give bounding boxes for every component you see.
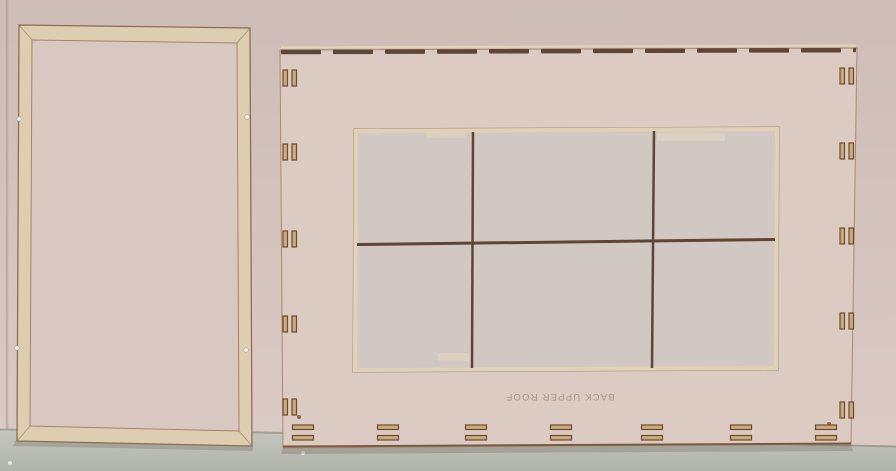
window-grid-vertical-1 bbox=[472, 132, 473, 368]
top-edge-notch bbox=[593, 49, 633, 54]
bottom-slot bbox=[293, 436, 314, 441]
light-streak bbox=[657, 133, 725, 141]
top-edge-notch bbox=[749, 48, 789, 53]
light-streak bbox=[438, 353, 470, 361]
floor-speck bbox=[8, 461, 12, 465]
bottom-slot bbox=[731, 425, 752, 430]
scene-photo: BACK UPPER ROOF bbox=[0, 0, 896, 471]
bottom-slot bbox=[378, 425, 399, 430]
light-streak bbox=[427, 132, 465, 138]
edge-slot bbox=[283, 70, 288, 86]
top-edge-notch bbox=[697, 48, 737, 53]
bottom-slot bbox=[642, 425, 663, 430]
pin bbox=[244, 348, 249, 353]
panel-label: BACK UPPER ROOF bbox=[505, 391, 614, 402]
bottom-slot bbox=[551, 436, 572, 441]
edge-slot bbox=[292, 70, 297, 86]
edge-slot bbox=[283, 316, 288, 332]
edge-slot bbox=[292, 231, 297, 247]
edge-slot bbox=[292, 399, 297, 415]
bottom-slot bbox=[466, 425, 487, 430]
edge-slot bbox=[849, 228, 854, 244]
bottom-slot bbox=[816, 425, 837, 430]
top-edge-notch bbox=[385, 49, 425, 54]
top-edge-notch bbox=[801, 48, 841, 53]
top-edge-notch bbox=[437, 49, 477, 54]
edge-slot bbox=[840, 402, 845, 418]
corner-dot bbox=[827, 422, 831, 426]
bottom-slot bbox=[816, 436, 837, 441]
bottom-slot bbox=[378, 436, 399, 441]
top-edge-notch bbox=[333, 50, 373, 55]
bottom-slot bbox=[642, 436, 663, 441]
edge-slot bbox=[840, 68, 845, 84]
bottom-slot bbox=[293, 425, 314, 430]
top-edge-notch bbox=[645, 48, 685, 53]
left-panel-face bbox=[30, 40, 239, 431]
pin bbox=[17, 117, 22, 122]
corner-dot bbox=[297, 415, 301, 419]
top-edge-notch bbox=[489, 49, 529, 54]
edge-slot bbox=[292, 316, 297, 332]
edge-slot bbox=[840, 143, 845, 159]
edge-slot bbox=[840, 313, 845, 329]
window-opening bbox=[355, 129, 777, 370]
edge-slot bbox=[849, 68, 854, 84]
edge-slot bbox=[849, 143, 854, 159]
bottom-slot bbox=[551, 425, 572, 430]
pin bbox=[15, 346, 20, 351]
pin bbox=[245, 115, 250, 120]
bottom-slot bbox=[466, 436, 487, 441]
top-edge-notch bbox=[541, 49, 581, 54]
bottom-slot bbox=[731, 436, 752, 441]
edge-slot bbox=[283, 231, 288, 247]
edge-slot bbox=[840, 228, 845, 244]
edge-slot bbox=[292, 144, 297, 160]
photo-stage: BACK UPPER ROOF bbox=[0, 0, 896, 471]
edge-slot bbox=[283, 144, 288, 160]
edge-slot bbox=[849, 402, 854, 418]
top-edge-notch bbox=[853, 48, 856, 53]
top-edge-notch bbox=[281, 50, 321, 55]
edge-slot bbox=[283, 399, 288, 415]
edge-slot bbox=[849, 313, 854, 329]
